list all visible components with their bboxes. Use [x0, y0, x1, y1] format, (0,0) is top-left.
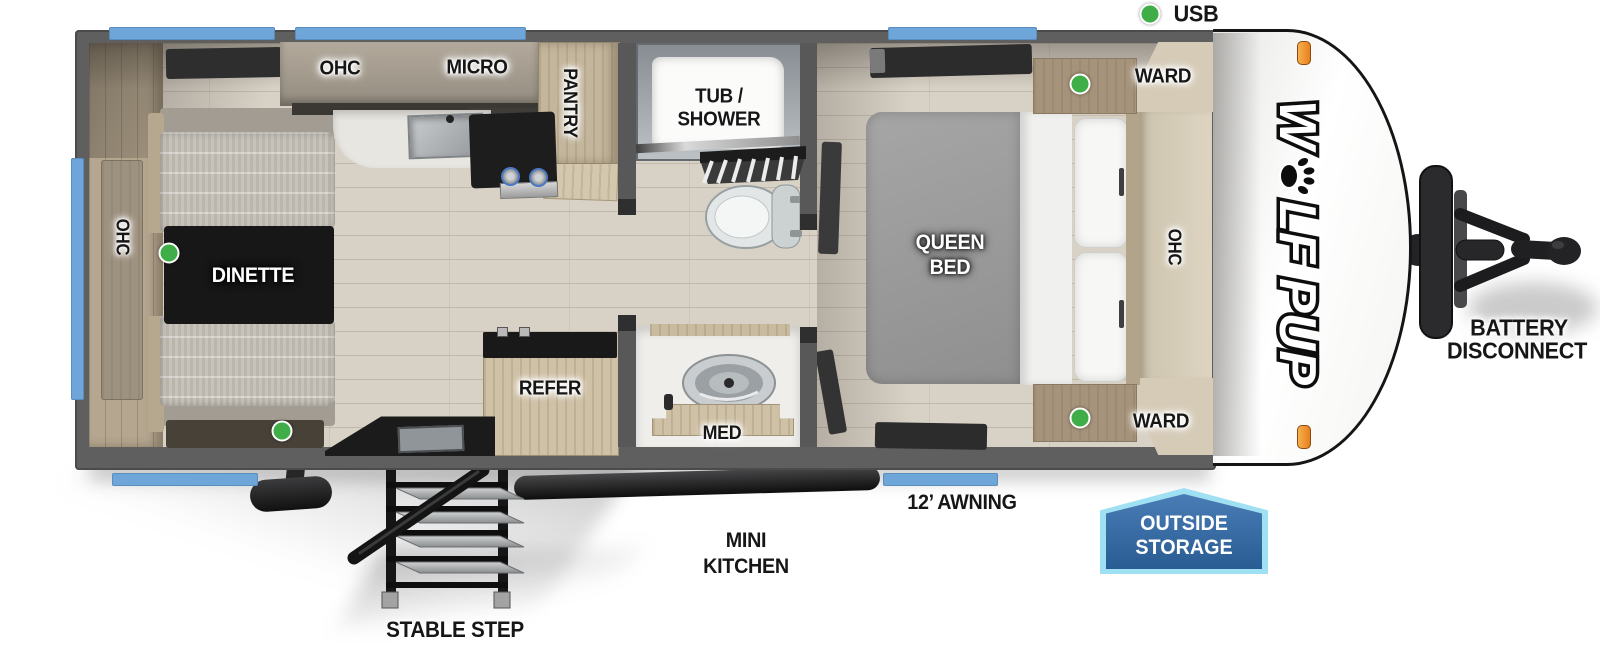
- bedroom-tv-shelf-cap: [870, 49, 886, 73]
- kitchen-ohc-label: OHC: [320, 58, 361, 81]
- cooktop-burner-right: [529, 168, 548, 187]
- mini-kitchen-label-line2: KITCHEN: [703, 555, 789, 579]
- tub-label-line1: TUB /: [695, 86, 743, 109]
- awning-label: 12’ AWNING: [907, 491, 1016, 515]
- window-bottom-bedroom: [883, 473, 998, 486]
- bath-wall-left-top: [618, 43, 636, 215]
- logo-first-letter: W: [1268, 100, 1326, 153]
- queen-bed-label-line2: BED: [930, 256, 971, 280]
- tongue-jack: [1420, 166, 1452, 338]
- kitchen-faucet: [446, 115, 454, 123]
- marker-light-bottom: [1297, 425, 1311, 449]
- outside-storage-label-line2: STORAGE: [1135, 536, 1232, 560]
- tub-label-line2: SHOWER: [678, 109, 761, 132]
- dinette-table-label: DINETTE: [212, 264, 294, 288]
- rear-ohc-label: OHC: [112, 219, 133, 256]
- dinette-bench-bottom: [160, 316, 335, 406]
- window-bottom-dinette: [112, 473, 258, 486]
- dinette-tv-shelf: [166, 47, 283, 79]
- bath-wall-left-bottom-cap: [618, 315, 636, 331]
- mini-kitchen-sink-insert: [398, 425, 465, 453]
- bedroom-bench-panel: [875, 422, 987, 450]
- dinette-bench-top: [160, 132, 335, 232]
- bath-wall-right-top: [800, 43, 817, 230]
- bath-wall-left-top-cap: [618, 199, 636, 215]
- coupler-ball-cap: [1547, 237, 1581, 265]
- dinette-bench-indicator-dot: [272, 421, 293, 442]
- mini-kitchen-label-line1: MINI: [726, 529, 767, 553]
- refrigerator-label: REFER: [519, 378, 581, 401]
- bedroom-tv-shelf: [870, 44, 1033, 78]
- pantry-label: PANTRY: [558, 68, 580, 138]
- bath-wall-right-bottom: [800, 327, 817, 447]
- bed-headboard: [1126, 112, 1140, 385]
- a-frame-top-arm: [1460, 214, 1524, 239]
- window-rear-wall: [71, 158, 84, 400]
- window-top-kitchen: [295, 27, 526, 40]
- stable-step-label: STABLE STEP: [386, 617, 524, 643]
- vanity-back-ledge: [650, 324, 790, 336]
- jack-crank: [1456, 240, 1504, 260]
- bed-handle-bottom: [1119, 300, 1124, 328]
- wolf-pup-logo: W LF PUP: [1254, 90, 1346, 420]
- bedroom-door-panel: [818, 142, 842, 255]
- paw-print-icon: [1280, 155, 1316, 197]
- microwave-label: MICRO: [446, 57, 507, 80]
- queen-bed-runner: [1020, 112, 1072, 385]
- coupler-highlight: [1552, 241, 1564, 249]
- bath-wall-left-bottom: [618, 315, 636, 447]
- usb-indicator-dot: [1140, 4, 1161, 25]
- vanity-faucet: [664, 394, 673, 410]
- window-top-bedroom: [888, 27, 1037, 40]
- outside-storage-label-line1: OUTSIDE: [1140, 512, 1228, 536]
- logo-rest: LF PUP: [1268, 200, 1326, 385]
- refrigerator-hinge-right: [519, 327, 530, 337]
- rear-ohc-cabinet: [101, 160, 143, 400]
- bed-handle-top: [1119, 168, 1124, 196]
- bath-wall-right-top-cap: [800, 214, 817, 230]
- bedroom-ohc-label: OHC: [1164, 229, 1185, 266]
- dinette-indicator-dot: [159, 243, 180, 264]
- floorplan-canvas: OHC DINETTE OHC MICRO PANTRY REFER TUB /…: [0, 0, 1600, 660]
- stabilizer-tube: [249, 475, 333, 513]
- refrigerator-hinge-left: [497, 327, 508, 337]
- dinette-bench-base: [166, 420, 324, 448]
- usb-label: USB: [1174, 1, 1219, 28]
- cooktop-burner-left: [501, 167, 520, 186]
- med-cabinet-label: MED: [703, 423, 742, 445]
- wardrobe-rear-label: WARD: [1135, 66, 1191, 89]
- window-top-rear: [109, 27, 275, 40]
- toilet: [702, 180, 806, 252]
- bath-wall-right-bottom-cap: [800, 327, 817, 343]
- wardrobe-rear-indicator-dot: [1070, 74, 1091, 95]
- marker-light-top: [1297, 41, 1311, 65]
- queen-bed-label-line1: QUEEN: [916, 231, 985, 255]
- wardrobe-front-label: WARD: [1133, 411, 1189, 434]
- battery-disconnect-label-line2: DISCONNECT: [1447, 338, 1587, 365]
- shower-head-icon: [698, 146, 808, 186]
- wardrobe-front-indicator-dot: [1070, 408, 1091, 429]
- a-frame-bottom-arm: [1460, 259, 1524, 286]
